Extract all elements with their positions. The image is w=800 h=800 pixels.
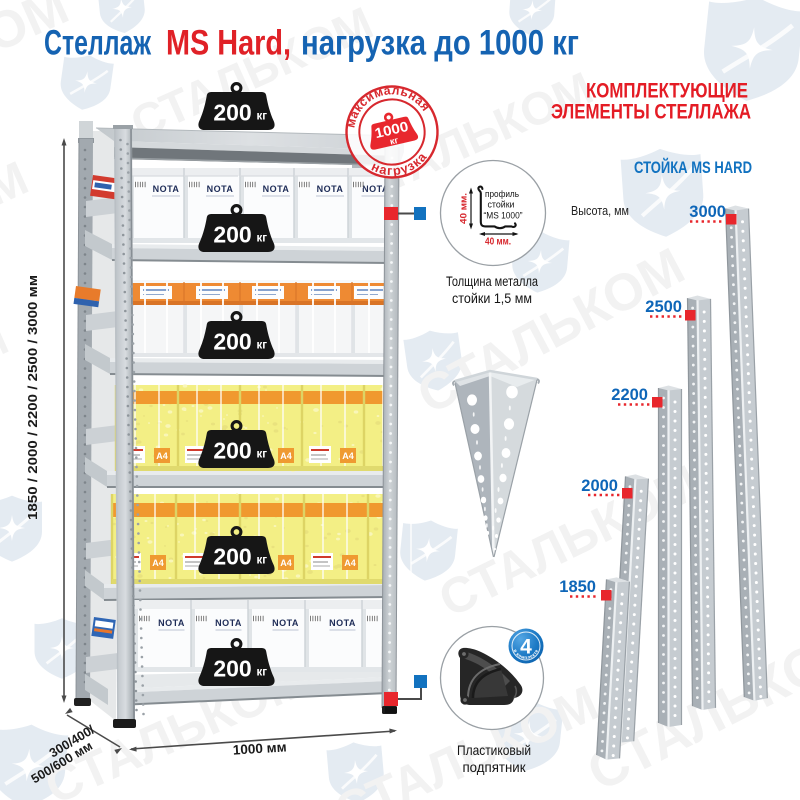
- svg-text:стойки 1,5 мм: стойки 1,5 мм: [452, 291, 532, 306]
- svg-text:кг: кг: [257, 340, 268, 352]
- svg-text:40 мм.: 40 мм.: [459, 193, 469, 224]
- svg-text:Пластиковый: Пластиковый: [457, 742, 531, 758]
- svg-text:NOTA: NOTA: [207, 184, 234, 194]
- svg-text:кг: кг: [257, 449, 268, 461]
- svg-text:профиль: профиль: [485, 189, 519, 200]
- svg-text:2500: 2500: [645, 298, 682, 316]
- svg-text:200: 200: [213, 438, 251, 464]
- svg-text:A4: A4: [342, 451, 354, 461]
- svg-text:1850 / 2000 / 2200 / 2500 / 30: 1850 / 2000 / 2200 / 2500 / 3000 мм: [25, 275, 40, 520]
- svg-text:NOTA: NOTA: [158, 618, 185, 628]
- svg-text:3000: 3000: [689, 203, 726, 221]
- svg-text:КОМПЛЕКТУЮЩИЕ: КОМПЛЕКТУЮЩИЕ: [586, 80, 748, 103]
- svg-text:200: 200: [213, 100, 251, 126]
- svg-text:A4: A4: [156, 451, 168, 461]
- svg-text:кг: кг: [257, 233, 268, 245]
- svg-text:NOTA: NOTA: [272, 618, 299, 628]
- svg-text:Толщина металла: Толщина металла: [446, 274, 538, 289]
- svg-text:A4: A4: [152, 558, 164, 568]
- svg-text:NOTA: NOTA: [329, 618, 356, 628]
- svg-text:200: 200: [213, 544, 251, 570]
- svg-text:A4: A4: [280, 451, 292, 461]
- svg-text:Стеллаж: Стеллаж: [44, 24, 152, 63]
- svg-text:NOTA: NOTA: [153, 184, 180, 194]
- svg-text:200: 200: [213, 656, 251, 682]
- svg-text:40 мм.: 40 мм.: [485, 237, 511, 248]
- svg-text:кг: кг: [257, 667, 268, 679]
- svg-text:A4: A4: [344, 558, 356, 568]
- svg-text:NOTA: NOTA: [317, 184, 344, 194]
- svg-text:СТОЙКА MS HARD: СТОЙКА MS HARD: [634, 158, 752, 177]
- svg-text:кг: кг: [257, 555, 268, 567]
- svg-text:NOTA: NOTA: [215, 618, 242, 628]
- svg-text:“MS 1000”: “MS 1000”: [484, 211, 523, 222]
- svg-text:A4: A4: [280, 558, 292, 568]
- svg-text:MS Hard,: MS Hard,: [166, 24, 291, 63]
- svg-text:нагрузка до 1000 кг: нагрузка до 1000 кг: [301, 24, 579, 63]
- svg-text:стойки: стойки: [488, 200, 515, 211]
- svg-text:1850: 1850: [559, 578, 596, 596]
- svg-text:ЭЛЕМЕНТЫ СТЕЛЛАЖА: ЭЛЕМЕНТЫ СТЕЛЛАЖА: [551, 101, 751, 124]
- svg-text:подпятник: подпятник: [463, 759, 527, 775]
- svg-text:Высота, мм: Высота, мм: [571, 203, 629, 218]
- svg-text:2200: 2200: [611, 386, 648, 404]
- svg-text:200: 200: [213, 329, 251, 355]
- svg-text:NOTA: NOTA: [263, 184, 290, 194]
- svg-text:кг: кг: [257, 111, 268, 123]
- svg-text:2000: 2000: [581, 477, 618, 495]
- svg-text:200: 200: [213, 222, 251, 248]
